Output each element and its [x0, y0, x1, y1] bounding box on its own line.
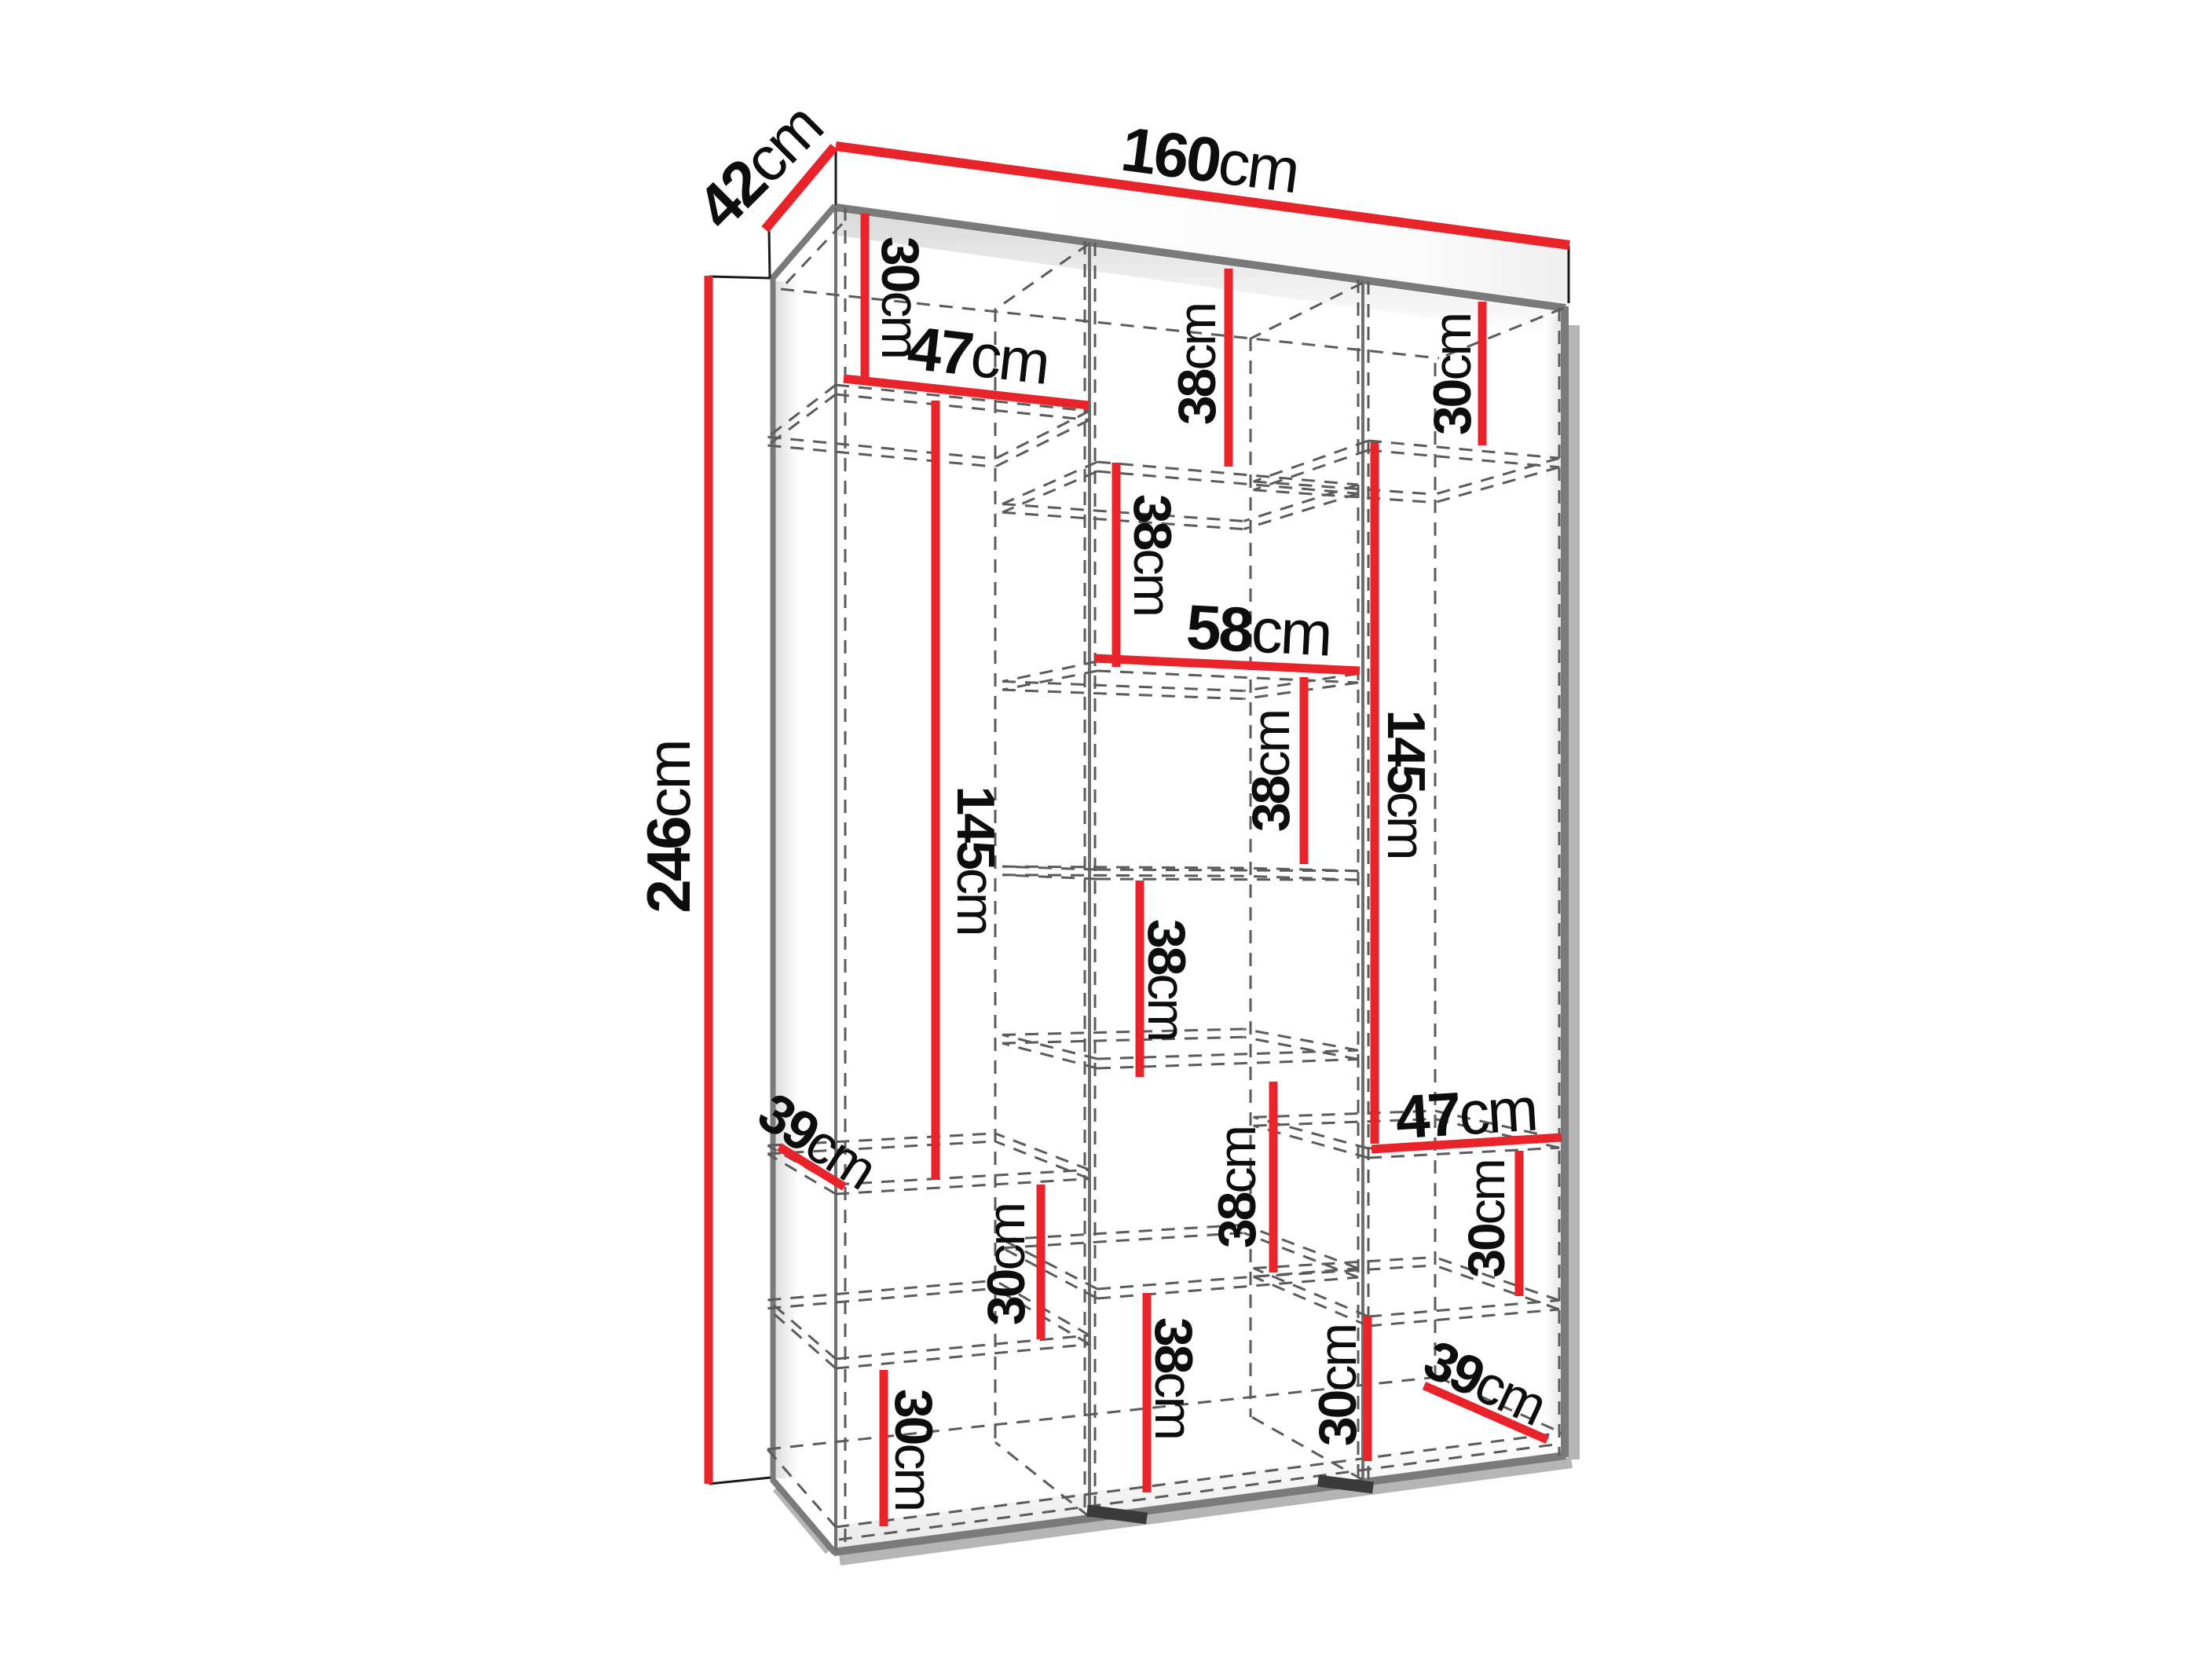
svg-text:30cm: 30cm: [976, 1204, 1036, 1325]
svg-text:47cm: 47cm: [1393, 1075, 1538, 1152]
svg-text:145cm: 145cm: [946, 786, 1005, 934]
svg-text:38cm: 38cm: [1241, 711, 1301, 832]
svg-text:30cm: 30cm: [1423, 314, 1482, 435]
svg-text:38cm: 38cm: [1207, 1127, 1267, 1248]
svg-text:38cm: 38cm: [1144, 1317, 1203, 1438]
svg-text:30cm: 30cm: [1308, 1325, 1368, 1446]
svg-text:38cm: 38cm: [1167, 304, 1227, 425]
svg-text:38cm: 38cm: [1137, 919, 1196, 1040]
svg-text:246cm: 246cm: [634, 741, 703, 913]
svg-text:145cm: 145cm: [1376, 709, 1436, 858]
svg-text:38cm: 38cm: [1122, 494, 1182, 615]
svg-text:58cm: 58cm: [1185, 591, 1332, 668]
svg-text:30cm: 30cm: [884, 1389, 943, 1510]
svg-text:30cm: 30cm: [1457, 1160, 1515, 1277]
